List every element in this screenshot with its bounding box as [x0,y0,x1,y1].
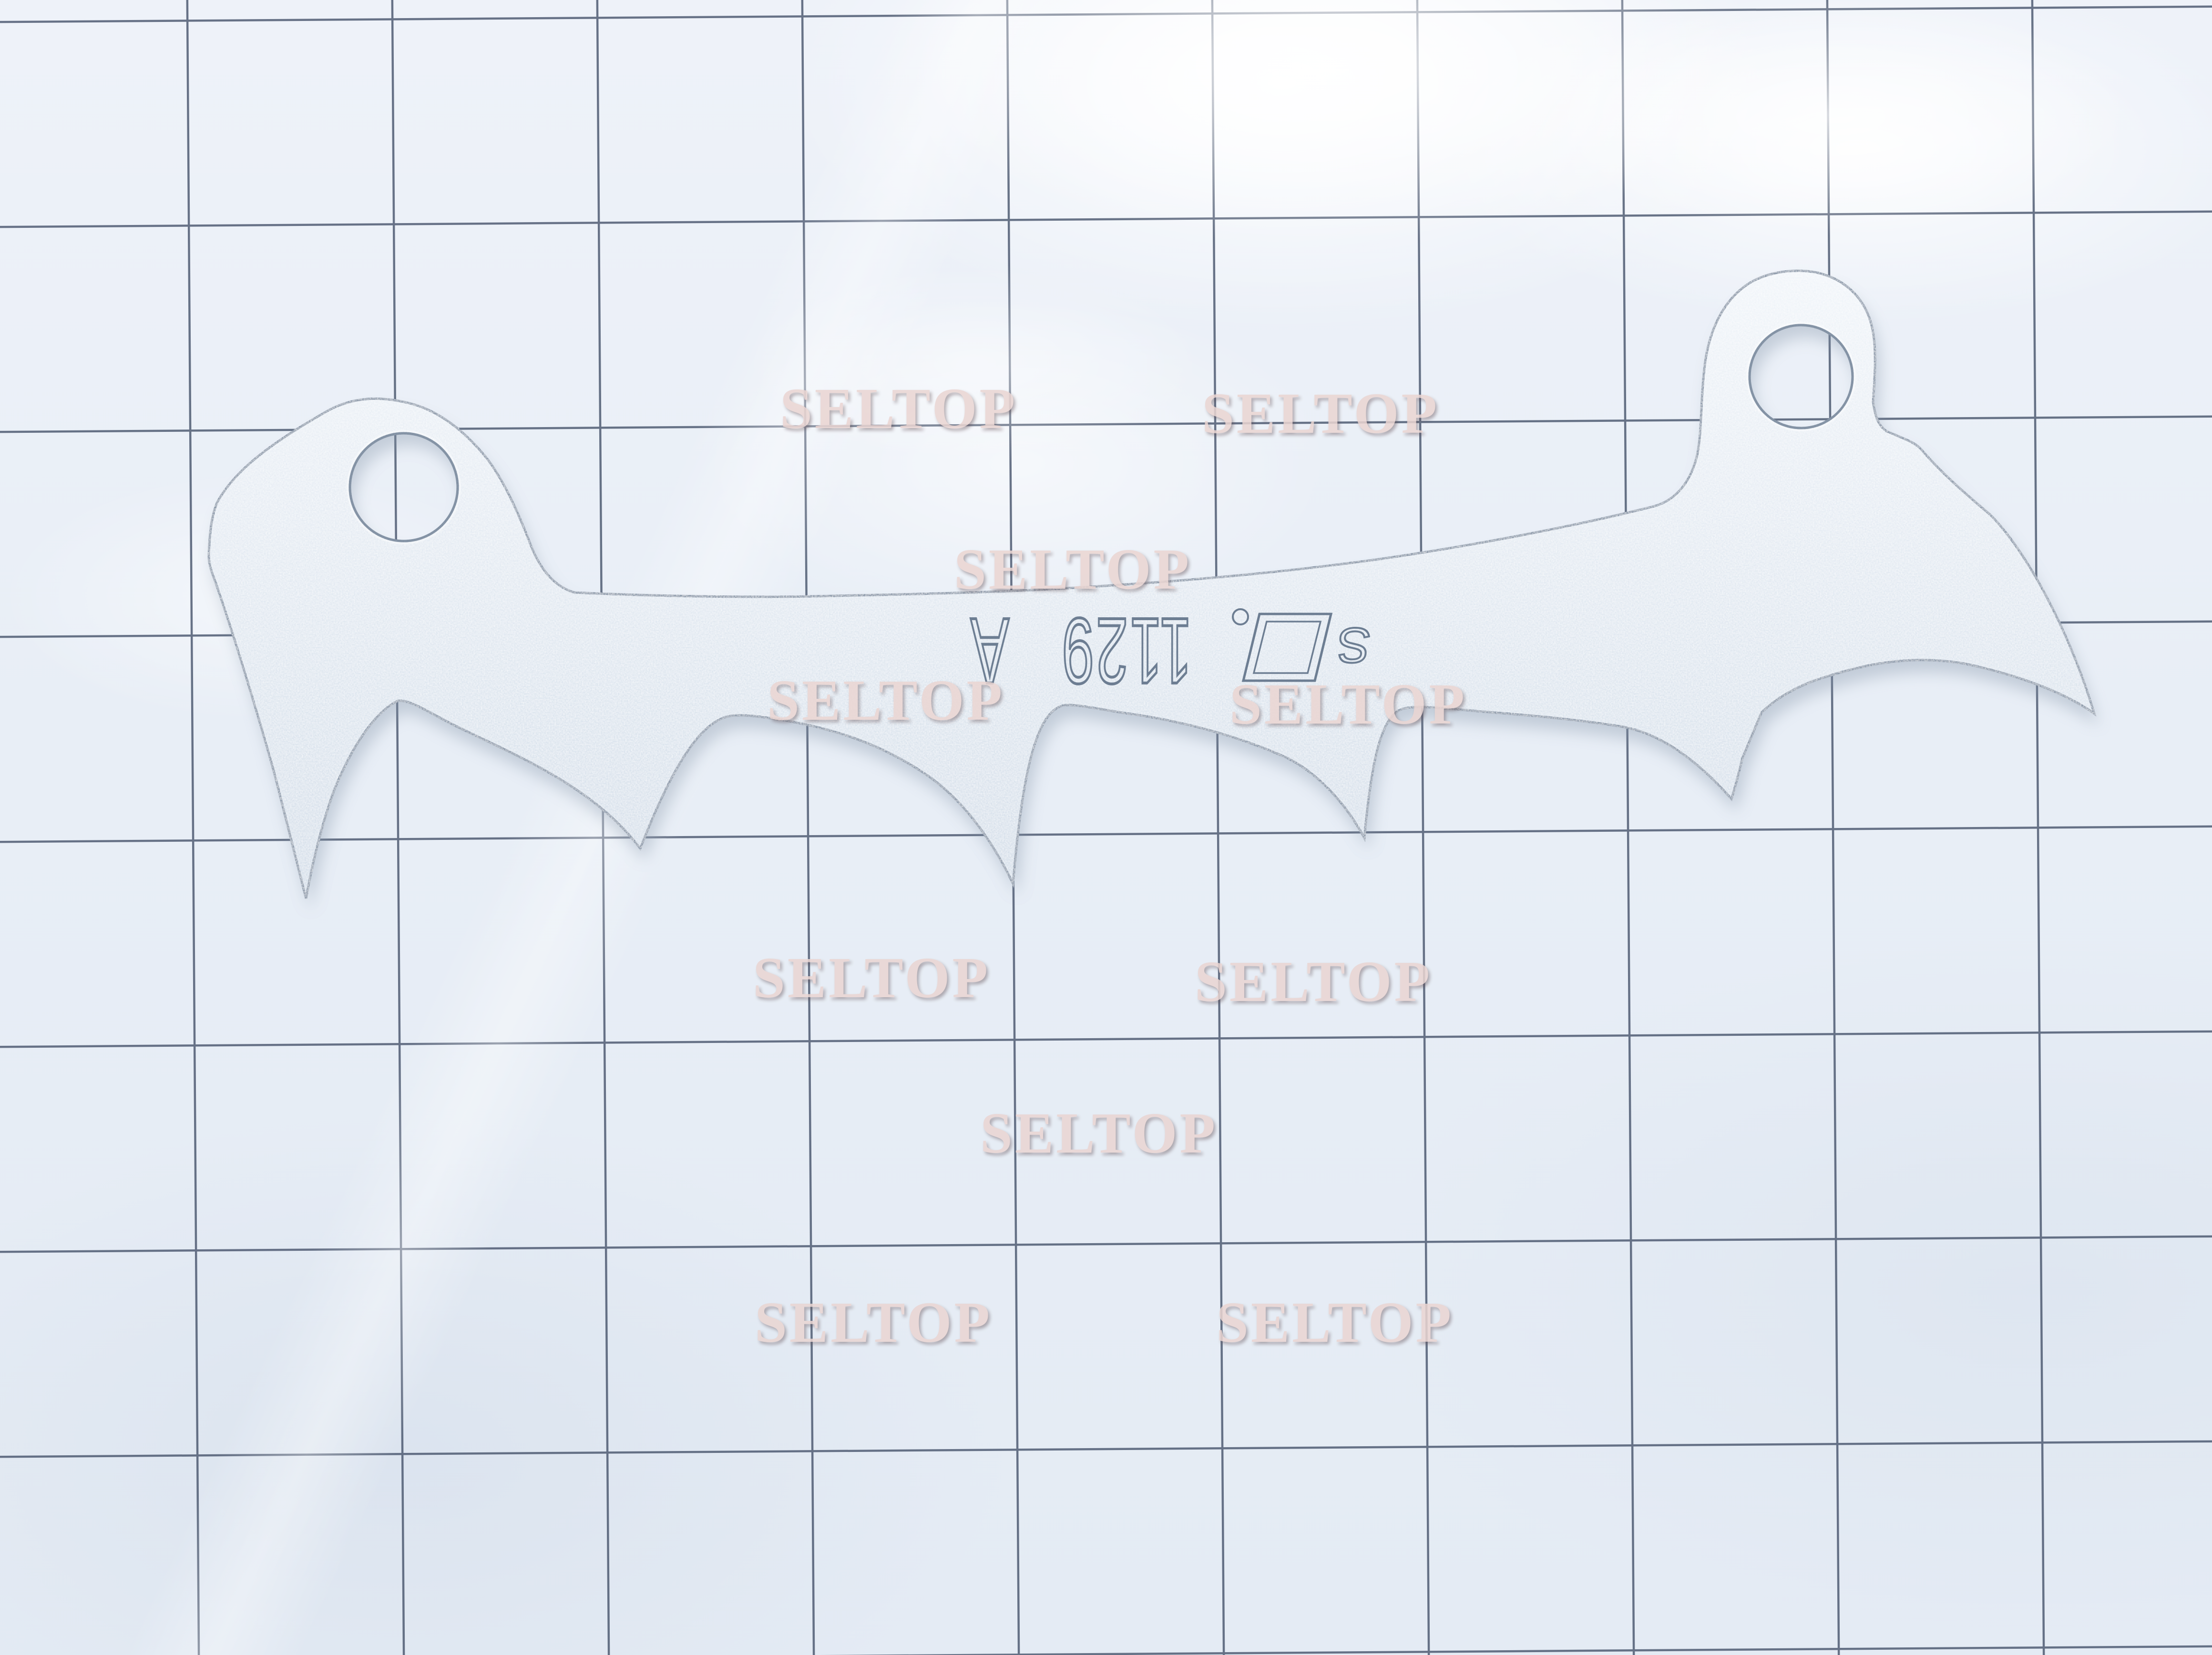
photo-stage: S 1129 A SELTOPSELTOPSELTOPSELTOPSELTOPS… [0,0,2212,1655]
mounting-hole-left-highlight [348,431,460,543]
watermark-text: SELTOP [1195,949,1432,1015]
bumper-spike-photo: S 1129 A [0,0,2212,1655]
watermark-text: SELTOP [1216,1289,1454,1356]
watermark-text: SELTOP [980,1100,1218,1167]
watermark-text: SELTOP [767,667,1004,734]
mounting-hole-left-rim [350,433,458,541]
watermark-text: SELTOP [780,376,1017,442]
watermark-text: SELTOP [1229,671,1467,738]
watermark-text: SELTOP [1202,380,1439,447]
mounting-hole-right-highlight [1747,323,1855,430]
watermark-text: SELTOP [753,945,990,1011]
watermark-text: SELTOP [755,1289,992,1356]
mounting-hole-right-rim [1750,325,1853,428]
stamp-logo-letter: S [1334,617,1373,673]
watermark-text: SELTOP [954,536,1191,603]
stamp-part-number: 1129 [1060,599,1192,704]
